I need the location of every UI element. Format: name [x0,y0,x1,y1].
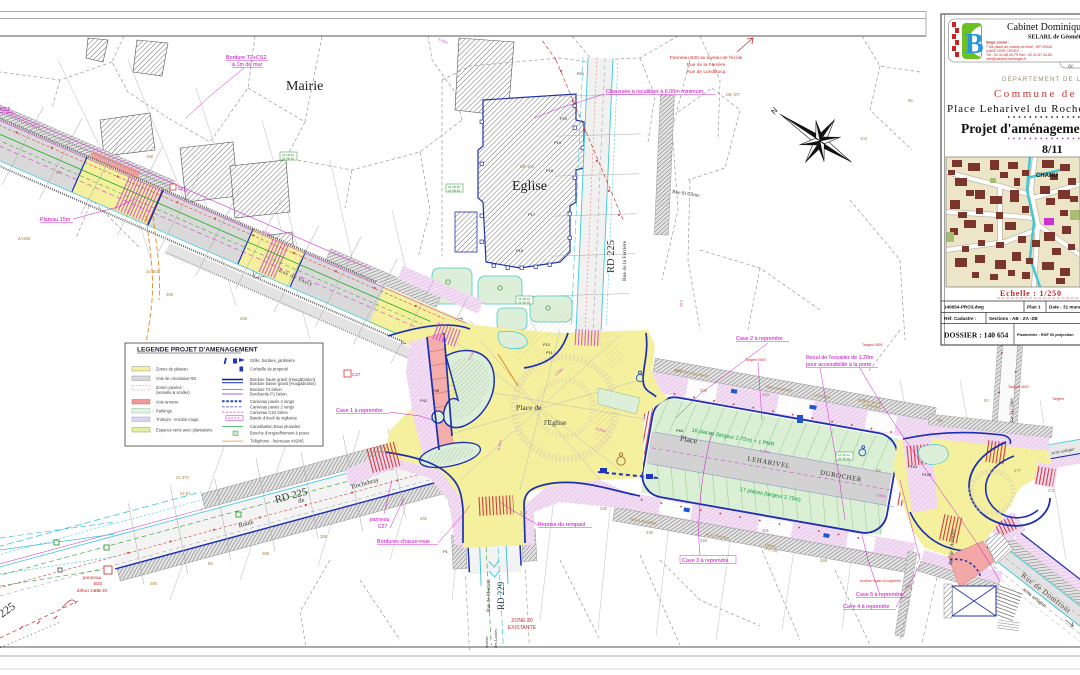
svg-text:26 4B 28: 26 4B 28 [282,156,294,160]
svg-text:P19: P19 [554,140,562,145]
svg-text:P64: P64 [676,428,684,433]
svg-text:à 1m du mur: à 1m du mur [232,62,262,68]
svg-text:Cave 3 à reprendre: Cave 3 à reprendre [682,558,728,564]
svg-text:Espaces verts avec plantations: Espaces verts avec plantations [156,428,212,433]
svg-text:93: 93 [984,398,989,403]
svg-text:Tangent 0600: Tangent 0600 [745,358,766,362]
svg-text:99: 99 [208,561,213,566]
svg-text:C27: C27 [378,524,387,530]
svg-text:Rue de Londlaocq: Rue de Londlaocq [687,69,726,75]
svg-text:277: 277 [1014,468,1022,473]
svg-text:Zones de plateau: Zones de plateau [156,367,188,372]
svg-text:168: 168 [146,154,154,159]
svg-text:Rue de la Ferrière: Rue de la Ferrière [687,62,726,68]
svg-text:140654-PRO3.dwg: 140654-PRO3.dwg [944,305,984,310]
svg-text:P1: P1 [443,549,449,554]
svg-text:RD 229: RD 229 [496,581,506,610]
svg-text:Tangent 0600: Tangent 0600 [1008,385,1029,389]
svg-text:DOSSIER : 140 654: DOSSIER : 140 654 [944,331,1009,340]
svg-text:246: 246 [520,510,528,515]
svg-text:24 370: 24 370 [176,475,189,480]
svg-text:Parkings: Parkings [156,409,172,414]
svg-text:DEPARTEMENT DE L'O: DEPARTEMENT DE L'O [1002,76,1080,83]
svg-text:Rue de la Ferrière: Rue de la Ferrière [622,240,628,281]
svg-text:Recul de l'escalier de 1.20m: Recul de l'escalier de 1.20m [806,355,874,361]
svg-text:B30: B30 [94,581,103,587]
svg-text:292: 292 [420,516,428,521]
svg-text:84: 84 [876,468,881,473]
svg-text:302: 302 [676,368,684,373]
svg-text:Cabinet Dominique B: Cabinet Dominique B [1007,22,1080,33]
svg-text:ZONE 30: ZONE 30 [511,618,533,624]
svg-text:281: 281 [762,528,770,533]
svg-text:des Landes: des Landes [493,629,498,648]
svg-text:P16: P16 [516,248,524,253]
svg-text:DB 100: DB 100 [520,164,535,169]
svg-text:413: 413 [762,392,770,397]
svg-text:Cave 4 à reprendre: Cave 4 à reprendre [843,604,889,610]
svg-text:Voie annexe: Voie annexe [156,400,179,405]
svg-text:269: 269 [166,292,174,297]
svg-text:88: 88 [938,418,943,423]
svg-text:P42: P42 [420,398,428,403]
svg-text:Trottoirs : enrobé rouge: Trottoirs : enrobé rouge [156,417,199,422]
svg-text:280: 280 [150,581,158,586]
svg-text:pour accessibilité à la porte: pour accessibilité à la porte [806,362,871,368]
svg-text:P12: P12 [543,342,551,347]
svg-text:Projet d'aménagemen: Projet d'aménagemen [961,121,1080,136]
svg-text:B: B [965,29,984,60]
svg-text:P18: P18 [546,168,554,173]
svg-text:Téléphone : fourreaux #42/45: Téléphone : fourreaux #42/45 [250,439,304,444]
svg-text:226: 226 [700,538,708,543]
svg-text:Plateau 15m: Plateau 15m [40,217,71,223]
svg-text:Plan 1: Plan 1 [1027,305,1041,310]
svg-text:Commune de C: Commune de C [994,88,1080,100]
svg-text:Caniveau pavés 2 rangs: Caniveau pavés 2 rangs [250,404,294,409]
svg-text:Place de: Place de [516,403,542,412]
svg-text:284: 284 [94,588,102,593]
svg-text:Bordure T2+CS2: Bordure T2+CS2 [0,107,11,113]
svg-text:P11: P11 [546,350,554,355]
svg-text:ZA268: ZA268 [18,236,31,241]
svg-text:26 4B 28: 26 4B 28 [518,300,530,304]
svg-text:panneau: panneau [83,576,102,581]
svg-text:Reprise du rempant: Reprise du rempant [538,522,586,528]
svg-text:Sections : AB - ZA -ZB: Sections : AB - ZA -ZB [989,316,1038,321]
svg-text:Rue de Mortain: Rue de Mortain [486,579,492,612]
svg-text:P21: P21 [577,71,585,76]
svg-text:Date : 31 mars 2015: Date : 31 mars 2015 [1049,305,1080,310]
svg-text:Voie de circulation RD: Voie de circulation RD [156,376,196,381]
svg-text:403: 403 [858,398,866,403]
svg-text:240: 240 [600,506,608,511]
svg-text:SELARL de Géomètre E: SELARL de Géomètre E [1028,35,1080,41]
svg-text:Bordures chasse-roue: Bordures chasse-roue [377,539,430,545]
svg-text:293: 293 [905,584,913,589]
svg-text:P108: P108 [922,472,932,477]
svg-text:103: 103 [860,136,868,141]
svg-text:289: 289 [320,534,328,539]
svg-text:288: 288 [262,551,270,556]
svg-text:P20: P20 [560,116,568,121]
svg-text:Mairie: Mairie [286,79,323,94]
svg-text:P48: P48 [432,388,440,393]
svg-text:Canalisation Eaux pluviales: Canalisation Eaux pluviales [250,424,300,429]
svg-text:268: 268 [820,558,828,563]
svg-text:268: 268 [240,316,248,321]
svg-text:vire@cabinet-bellanger.fr: vire@cabinet-bellanger.fr [986,57,1027,61]
svg-text:26 4B 28: 26 4B 28 [448,188,460,192]
svg-text:P17: P17 [528,212,536,217]
svg-text:LEGENDE PROJET D'AMENAGEMENT: LEGENDE PROJET D'AMENAGEMENT [137,347,258,354]
svg-text:Chaussée à recalibrer à 6.00m: Chaussée à recalibrer à 6.00m minimum [606,89,704,95]
svg-text:Caniveau CS2 béton: Caniveau CS2 béton [250,410,289,415]
svg-text:Bordure basse granit (Houg&bra: Bordure basse granit (Houg&bralon) [250,381,316,386]
svg-text:98: 98 [56,170,61,175]
svg-text:Caniveau pavés 4 rangs: Caniveau pavés 4 rangs [250,399,294,404]
svg-text:5.60: 5.60 [679,300,683,307]
svg-text:271: 271 [1048,488,1056,493]
svg-text:P104: P104 [908,464,918,469]
svg-text:bordure regard à supprimer: bordure regard à supprimer [860,579,902,583]
svg-text:C27: C27 [352,372,361,377]
svg-text:Bouche d'engouffrement à poser: Bouche d'engouffrement à poser [250,431,310,436]
svg-text:235: 235 [646,530,654,535]
svg-text:Corbeille de propreté: Corbeille de propreté [250,367,289,372]
svg-text:début zone 30: début zone 30 [77,588,108,594]
svg-text:Cave 2 à reprendre: Cave 2 à reprendre [736,336,782,342]
svg-text:24 302: 24 302 [146,269,159,274]
svg-text:Tangent 0605: Tangent 0605 [862,343,883,347]
svg-text:(semelle & sceller): (semelle & sceller) [156,390,190,395]
svg-text:Panneau B30 au niveau de l'éco: Panneau B30 au niveau de l'école [670,55,743,61]
svg-text:95: 95 [908,98,913,103]
svg-text:DB 107: DB 107 [726,92,741,97]
svg-text:Grille, bordure, jardinière: Grille, bordure, jardinière [250,358,296,363]
svg-text:Tangent: Tangent [1052,397,1064,401]
svg-text:EXISTANTE: EXISTANTE [508,625,537,631]
svg-text:Bordurette P1 béton: Bordurette P1 béton [250,392,287,397]
svg-text:408: 408 [700,388,708,393]
svg-text:RD 225: RD 225 [606,240,617,273]
svg-text:Sentier: Sentier [484,636,489,648]
svg-text:Dé: Dé [1067,64,1074,69]
svg-text:Planimétrie : RGF 93 projectio: Planimétrie : RGF 93 projection [1017,333,1074,337]
svg-text:CHANU: CHANU [1036,173,1058,179]
svg-text:l'Eglise: l'Eglise [544,418,567,427]
svg-text:panneau: panneau [370,517,390,523]
svg-text:Cave 1 à reprendre: Cave 1 à reprendre [336,408,382,414]
svg-text:Echelle : 1/250: Echelle : 1/250 [1000,289,1062,298]
svg-text:Réf. Cadastre :: Réf. Cadastre : [944,316,977,321]
svg-text:26 4B 28: 26 4B 28 [838,456,850,460]
svg-text:24 87: 24 87 [180,491,191,496]
svg-text:Eglise: Eglise [512,179,547,194]
svg-text:Bordure T2+CS2: Bordure T2+CS2 [226,55,267,61]
svg-text:8/11: 8/11 [1042,142,1063,156]
svg-text:Bande d'éveil de vigilance: Bande d'éveil de vigilance [250,416,298,421]
svg-text:Place Leharivel du Rocher e: Place Leharivel du Rocher e [947,103,1080,115]
svg-text:Rue St Côme: Rue St Côme [1010,398,1015,424]
